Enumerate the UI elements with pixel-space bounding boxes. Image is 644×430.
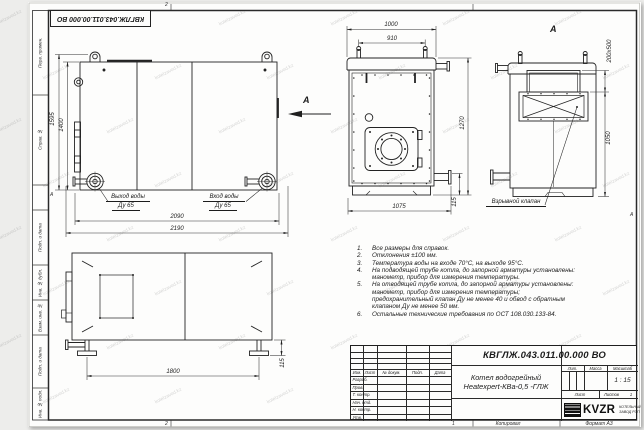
side-view-dimensions	[55, 55, 288, 238]
view-arrow-letter: А	[303, 95, 310, 105]
note-6: 6.Остальные технические требования по ОС…	[357, 311, 583, 318]
tb-sheets-label: Листов	[599, 390, 624, 398]
tb-mass-header: Масса	[584, 365, 607, 371]
note-number: 4.	[357, 267, 372, 282]
dim-side-width-2: 2190	[157, 226, 197, 232]
rear-view-dimensions	[582, 71, 609, 197]
note-number: 1.	[357, 245, 372, 252]
rear-view-letter: А	[550, 24, 557, 34]
note-number: 3.	[357, 260, 372, 267]
tb-line	[351, 352, 451, 353]
tb-line	[351, 358, 451, 359]
zone-letter-left: А	[50, 192, 53, 198]
zone-number-bottom-left: 2	[165, 421, 168, 427]
zone-number-top: 2	[165, 2, 168, 8]
tb-line	[569, 371, 570, 390]
tb-doc-number: КВГЛЖ.043.011.00.000 ВО	[451, 346, 638, 365]
tb-row-tkontr: Т. контр.	[351, 391, 379, 399]
dim-front-base: 1075	[379, 204, 419, 210]
tb-col-izm: Изм.	[351, 369, 363, 376]
tb-line	[576, 371, 577, 390]
dim-front-width-2: 910	[373, 36, 411, 42]
dim-plan-foot: 115	[280, 349, 286, 377]
tb-line	[429, 346, 430, 421]
rear-view	[491, 52, 597, 206]
dim-front-foot: 115	[452, 188, 458, 216]
kvzr-logo-icon	[564, 403, 581, 417]
water-inlet-label: Вход воды	[203, 194, 245, 202]
kvzr-logo-text: KVZR	[583, 404, 615, 416]
water-inlet-dn: Ду 65	[209, 203, 237, 211]
tb-col-data: Дата	[429, 369, 451, 376]
note-3: 3.Температура воды на входе 70°С, на вых…	[357, 260, 583, 267]
frame-label-inv-podl: Инв. № подл.	[32, 388, 48, 420]
frame-label-perv-primen: Перв. примен.	[32, 10, 48, 95]
tb-logo-area: KVZR КОТЕЛЬНЫЙ ЗАВОД РЭП	[561, 398, 641, 421]
tb-col-docum: № докум.	[377, 369, 406, 376]
copied-by-label: Копировал	[473, 421, 543, 427]
note-number: 5.	[357, 281, 372, 310]
tb-title-line-2: Heatexpert-КВа-0,5 -ГЛЖ	[464, 382, 549, 391]
dim-side-inner-height: 1400	[59, 111, 65, 139]
tb-row-utv: Утв.	[351, 414, 379, 422]
note-number: 2.	[357, 252, 372, 259]
explosion-valve-label: Взрывной клапан	[486, 199, 546, 207]
view-direction-arrow	[288, 111, 331, 117]
note-text: Остальные технические требования по ОСТ …	[372, 311, 578, 318]
front-view	[347, 47, 451, 196]
tb-row-razrab: Разраб.	[351, 376, 379, 384]
zone-letter-right: А	[630, 212, 633, 218]
tb-title-line-1: Котел водогрейный	[471, 373, 541, 382]
note-text: Отклонения ±100 мм.	[372, 252, 578, 259]
tb-sheet-label: Лист	[561, 390, 599, 398]
frame-label-podp-data-2: Подп. и дата	[32, 335, 48, 388]
dim-front-height: 1270	[460, 109, 466, 137]
note-text: Все размеры для справок.	[372, 245, 578, 252]
note-text: Температура воды на входе 70°С, на выход…	[372, 260, 578, 267]
zone-number-bottom-center: 1	[452, 421, 455, 427]
tb-row-nkontr: Н. контр.	[351, 406, 379, 414]
company-line-2: ЗАВОД РЭП	[619, 410, 641, 414]
dim-side-total-height: 1595	[50, 105, 56, 133]
note-2: 2.Отклонения ±100 мм.	[357, 252, 583, 259]
note-number: 6.	[357, 311, 372, 318]
frame-label-sprav-no: Справ. №	[32, 95, 48, 185]
tb-row-nachotd: Нач. отд.	[351, 399, 379, 407]
tb-line	[351, 363, 451, 364]
tb-col-podp: Подп.	[406, 369, 429, 376]
dim-plan-width: 1800	[153, 369, 193, 375]
tb-sheets-value: 1	[624, 390, 638, 398]
water-outlet-label: Выход воды	[106, 194, 150, 202]
inverted-doc-number-stamp: КВГЛЖ.043.011.00.000 ВО	[50, 10, 151, 27]
tb-product-title: Котел водогрейный Heatexpert-КВа-0,5 -ГЛ…	[451, 365, 561, 398]
water-outlet-dn: Ду 65	[112, 203, 140, 211]
note-text: На подводящей трубе котла, до запорной а…	[372, 267, 578, 282]
plan-view	[62, 253, 273, 356]
title-block: КВГЛЖ.043.011.00.000 ВО Котел водогрейны…	[350, 345, 637, 420]
tb-line	[406, 346, 407, 421]
tb-row-prov: Пров.	[351, 384, 379, 392]
note-text: На отводящей трубе котла, до запорной ар…	[372, 281, 578, 310]
technical-notes: 1.Все размеры для справок. 2.Отклонения …	[357, 245, 583, 318]
stamp-doc-number: КВГЛЖ.043.011.00.000 ВО	[57, 15, 144, 22]
tb-scale-value: 1 : 15	[607, 371, 638, 390]
dim-rear-height: 1050	[606, 124, 612, 152]
note-5: 5.На отводящей трубе котла, до запорной …	[357, 281, 583, 310]
format-label: Формат А3	[563, 421, 635, 427]
tb-lit-header: Лит.	[561, 365, 584, 371]
side-view	[73, 52, 278, 202]
frame-label-vzam-inv: Взам. инв. №	[32, 300, 48, 335]
note-4: 4.На подводящей трубе котла, до запорной…	[357, 267, 583, 282]
company-name: КОТЕЛЬНЫЙ ЗАВОД РЭП	[619, 405, 641, 414]
dim-rear-valve-size: 200х500	[607, 33, 613, 69]
tb-col-list: Лист	[363, 369, 377, 376]
frame-label-inv-dubl: Инв. № дубл.	[32, 265, 48, 300]
dim-side-width-1: 2090	[157, 214, 197, 220]
frame-label-podp-data-1: Подп. и дата	[32, 210, 48, 265]
drawing-sheet: kotelzavod.kzkotelzavod.kzkotelzavod.kzk…	[0, 0, 644, 430]
dim-front-width-1: 1000	[371, 22, 411, 28]
note-1: 1.Все размеры для справок.	[357, 245, 583, 252]
